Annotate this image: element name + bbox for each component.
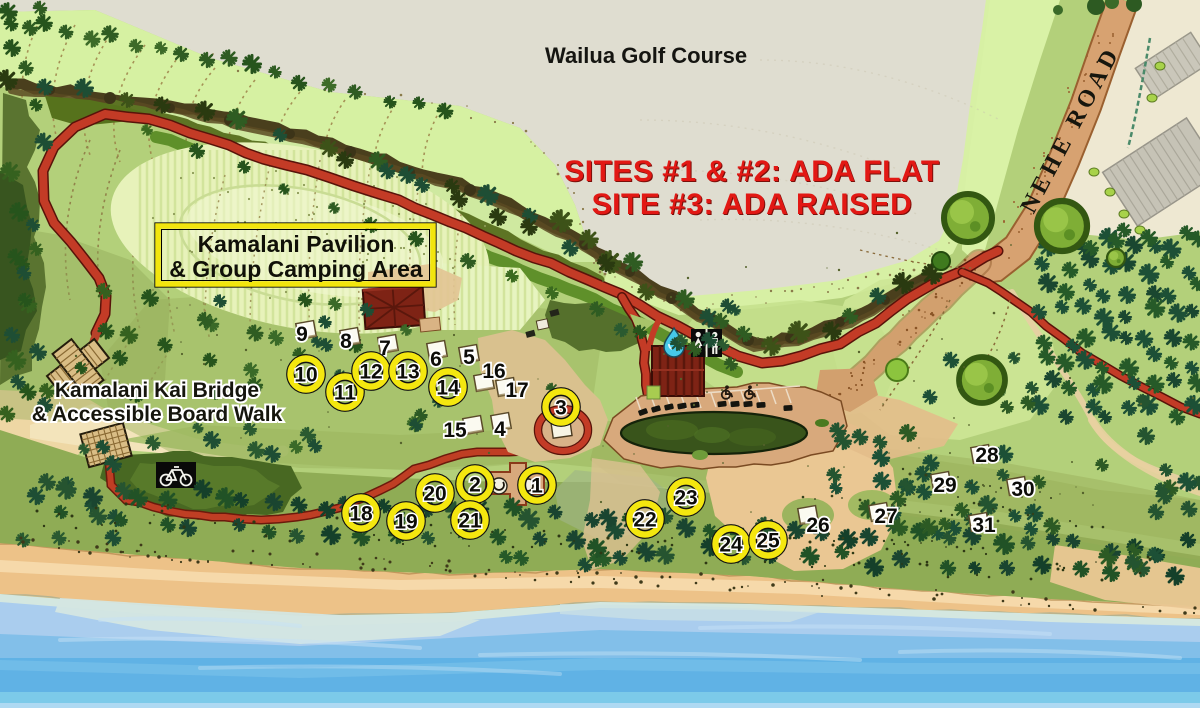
- svg-text:28: 28: [975, 444, 999, 467]
- svg-text:SITES #1 & #2: ADA FLAT: SITES #1 & #2: ADA FLAT: [564, 155, 939, 188]
- svg-text:Kamalani Kai Bridge: Kamalani Kai Bridge: [55, 379, 259, 402]
- svg-text:12: 12: [359, 361, 382, 384]
- svg-text:6: 6: [430, 348, 442, 371]
- svg-text:24: 24: [719, 534, 743, 557]
- svg-text:Wailua Golf Course: Wailua Golf Course: [545, 43, 747, 68]
- svg-text:4: 4: [494, 418, 506, 441]
- svg-text:27: 27: [874, 505, 897, 528]
- svg-text:18: 18: [349, 503, 373, 526]
- svg-text:22: 22: [633, 509, 656, 532]
- svg-text:& Accessible Board Walk: & Accessible Board Walk: [32, 403, 283, 426]
- svg-text:5: 5: [463, 346, 475, 369]
- svg-text:15: 15: [443, 419, 467, 442]
- svg-text:21: 21: [458, 510, 482, 533]
- svg-text:29: 29: [933, 474, 956, 497]
- svg-text:8: 8: [340, 330, 352, 353]
- svg-text:31: 31: [972, 514, 996, 537]
- svg-text:SITE #3: ADA RAISED: SITE #3: ADA RAISED: [592, 188, 913, 221]
- svg-text:30: 30: [1011, 478, 1034, 501]
- svg-text:Kamalani Pavilion: Kamalani Pavilion: [198, 231, 395, 257]
- svg-text:13: 13: [396, 361, 419, 384]
- svg-text:25: 25: [756, 530, 780, 553]
- svg-text:23: 23: [674, 487, 697, 510]
- svg-text:3: 3: [555, 397, 567, 420]
- svg-text:17: 17: [505, 379, 528, 402]
- svg-text:10: 10: [294, 364, 317, 387]
- svg-text:2: 2: [469, 474, 481, 497]
- svg-text:20: 20: [423, 483, 446, 506]
- svg-text:1: 1: [531, 475, 543, 498]
- svg-text:16: 16: [482, 360, 505, 383]
- svg-text:19: 19: [394, 511, 417, 534]
- svg-text:9: 9: [296, 323, 308, 346]
- svg-text:& Group Camping Area: & Group Camping Area: [169, 256, 423, 282]
- svg-text:14: 14: [436, 377, 460, 400]
- svg-text:26: 26: [806, 514, 829, 537]
- svg-text:11: 11: [334, 382, 357, 405]
